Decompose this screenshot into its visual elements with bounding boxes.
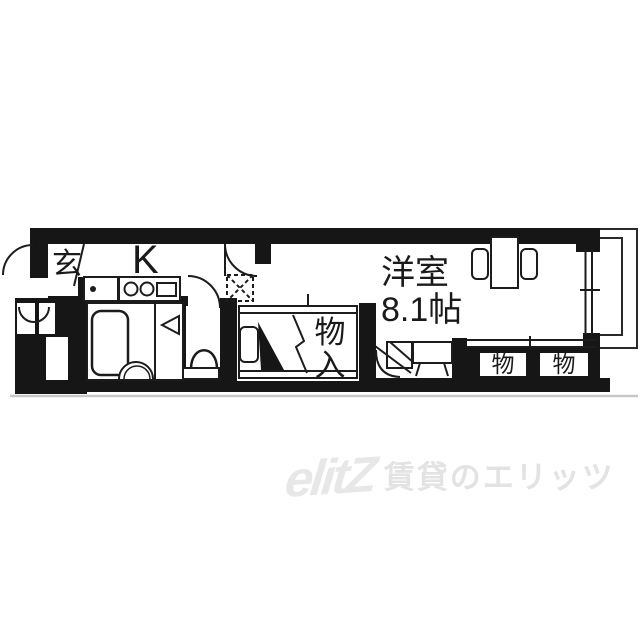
kitchen-label: K — [132, 238, 159, 282]
wall-alcove-right-stub — [452, 338, 467, 390]
bathroom — [87, 303, 183, 380]
entrance-label: 玄 — [52, 248, 82, 281]
floorplan-drawing: 物 入 物 物 — [0, 0, 640, 640]
storage-right-label: 物 — [553, 351, 576, 377]
chair-right-sketch — [521, 249, 537, 279]
storage-left-label: 物 — [492, 351, 515, 377]
closet-label-bottom: 入 — [315, 348, 346, 383]
wall-entrance-stub — [30, 244, 48, 278]
wall-interior-vertical — [220, 298, 237, 392]
floorplan-image: 物 入 物 物 — [0, 0, 640, 640]
wall-right-top-corner — [576, 228, 600, 252]
main-room-label: 洋室 — [381, 254, 449, 292]
closet: 物 入 — [237, 294, 359, 383]
washer-space — [240, 327, 258, 362]
wall-door-stub-top — [255, 244, 271, 264]
chair-left-sketch — [472, 249, 488, 279]
kitchen-sink-unit — [84, 277, 118, 301]
kitchen-faucet-dot — [90, 286, 96, 292]
closet-label-top: 物 — [315, 315, 346, 350]
bathtub — [92, 311, 128, 375]
toilet-base — [183, 368, 219, 379]
main-room-size-label: 8.1帖 — [381, 291, 462, 329]
table-sketch — [491, 237, 518, 288]
wall-closet-right — [358, 303, 376, 392]
